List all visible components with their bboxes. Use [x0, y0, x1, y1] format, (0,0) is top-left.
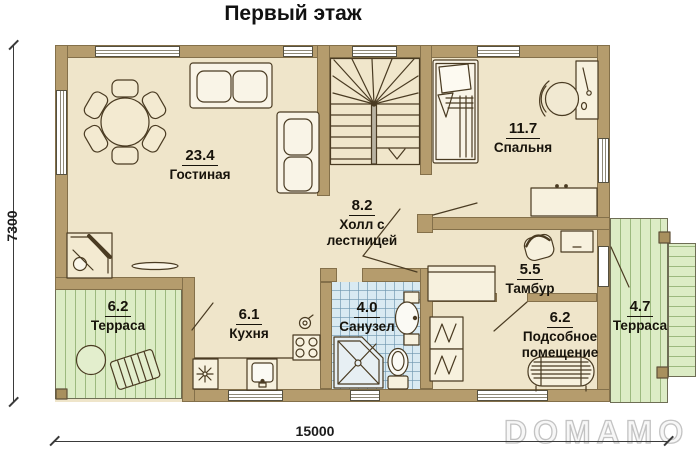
- room-name: Подсобное помещение: [518, 329, 602, 361]
- dining-table-icon: [82, 80, 168, 164]
- toilet-icon: [388, 349, 408, 390]
- area-value: 4.0: [354, 299, 381, 318]
- dresser-icon: [531, 185, 597, 216]
- area-value: 8.2: [349, 197, 376, 216]
- room-name: Гостиная: [160, 167, 240, 183]
- label-bathroom: 4.0 Санузел: [327, 299, 407, 335]
- label-terrace-right: 4.7 Терраса: [600, 298, 680, 334]
- label-tambour: 5.5 Тамбур: [490, 261, 570, 297]
- area-value: 4.7: [627, 298, 654, 317]
- desk-icon: [576, 61, 598, 119]
- terrace-post-icon: [657, 367, 668, 378]
- floor-plan: Первый этаж ДОМАМО: [0, 0, 700, 453]
- label-terrace-left: 6.2 Терраса: [78, 298, 158, 334]
- terrace-table-icon: [77, 346, 106, 375]
- kettle-icon: [300, 315, 314, 329]
- boiler-tank-icon: [528, 357, 594, 391]
- area-value: 6.2: [547, 309, 574, 328]
- shelf-icon: [132, 263, 178, 270]
- armchair-icon: [523, 232, 556, 262]
- office-chair-icon: [540, 81, 579, 116]
- shower-icon: [334, 337, 383, 388]
- label-bedroom: 11.7 Спальня: [483, 120, 563, 156]
- area-value: 6.1: [236, 306, 263, 325]
- area-value: 5.5: [517, 261, 544, 280]
- area-value: 11.7: [506, 120, 540, 139]
- label-utility: 6.2 Подсобное помещение: [518, 309, 602, 361]
- room-name: Терраса: [78, 318, 158, 334]
- terrace-post-icon: [659, 232, 670, 243]
- dimension-width: 15000: [280, 423, 350, 439]
- lounge-chair-icon: [110, 349, 161, 390]
- bed-icon: [433, 60, 478, 163]
- water-heater-icon: [430, 317, 463, 381]
- fireplace-icon: [67, 233, 112, 278]
- sofa-side-icon: [277, 112, 319, 193]
- sofa-icon: [190, 63, 272, 108]
- wardrobe-icon: [428, 266, 495, 301]
- room-name: Холл с лестницей: [307, 217, 417, 249]
- vent-icon: [193, 359, 218, 389]
- room-name: Кухня: [209, 326, 289, 342]
- label-kitchen: 6.1 Кухня: [209, 306, 289, 342]
- room-name: Спальня: [483, 140, 563, 156]
- staircase-icon: [331, 59, 420, 165]
- kitchen-sink-icon: [247, 359, 277, 390]
- area-value: 23.4: [182, 147, 217, 166]
- label-hall: 8.2 Холл с лестницей: [307, 197, 417, 249]
- cabinet-icon: [561, 231, 593, 252]
- stove-icon: [293, 335, 320, 360]
- area-value: 6.2: [105, 298, 132, 317]
- dimension-line-horizontal: [55, 441, 669, 442]
- room-name: Терраса: [600, 318, 680, 334]
- dimension-height: 7300: [4, 204, 20, 248]
- label-living: 23.4 Гостиная: [160, 147, 240, 183]
- room-name: Санузел: [327, 319, 407, 335]
- room-name: Тамбур: [490, 281, 570, 297]
- terrace-post-icon: [56, 389, 67, 399]
